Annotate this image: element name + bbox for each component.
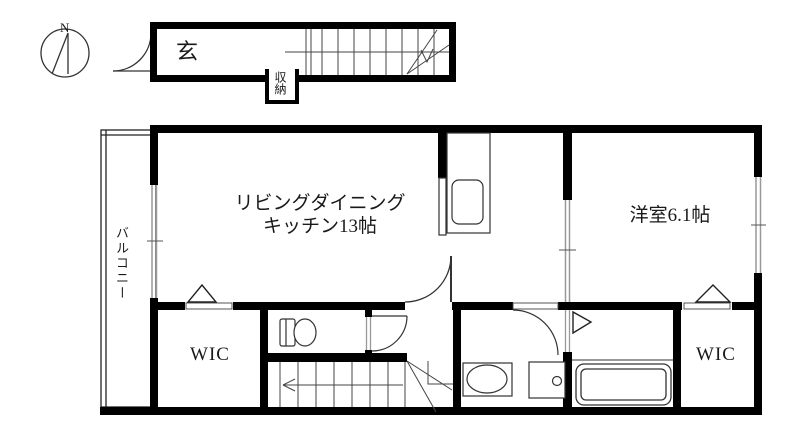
wic-right-label: WIC	[676, 344, 756, 366]
balcony-label: バルコニー	[112, 226, 131, 301]
wic-left-label: WIC	[170, 344, 250, 366]
bathtub-icon	[572, 360, 673, 405]
ldk-label-line1: リビングダイニング	[234, 193, 405, 214]
western-room-window-icon	[751, 177, 766, 273]
entrance-label: 玄	[176, 34, 198, 66]
toilet-door-icon	[372, 316, 407, 351]
wic-left-door-icon	[188, 285, 216, 302]
ldk-label-line2: キッチン13帖	[263, 216, 377, 237]
washing-machine-pan-icon	[529, 362, 565, 398]
storage-label: 収納	[273, 71, 287, 95]
living-door-icon	[405, 256, 451, 302]
upper-stairs-icon	[285, 29, 449, 75]
compass-north-label: N	[60, 20, 69, 36]
sliding-door-icon	[559, 200, 576, 302]
western-room-label: 洋室6.1帖	[590, 200, 750, 227]
washbasin-icon	[463, 363, 512, 396]
toilet-icon	[280, 319, 316, 346]
balcony-window-icon	[147, 185, 163, 298]
wic-right-door-icon	[696, 285, 730, 302]
compass-icon	[41, 29, 89, 77]
entrance-door-icon	[113, 33, 151, 71]
washroom-door-icon	[513, 310, 558, 355]
kitchen-counter-icon	[439, 133, 490, 235]
bath-door-icon	[573, 312, 591, 333]
ldk-label: リビングダイニング キッチン13帖	[225, 192, 415, 238]
lower-stairs-icon	[280, 361, 453, 412]
floor-plan: N 玄 収納 バルコニー リビングダイニング キッチン13帖 洋室6.1帖 WI…	[0, 0, 800, 435]
